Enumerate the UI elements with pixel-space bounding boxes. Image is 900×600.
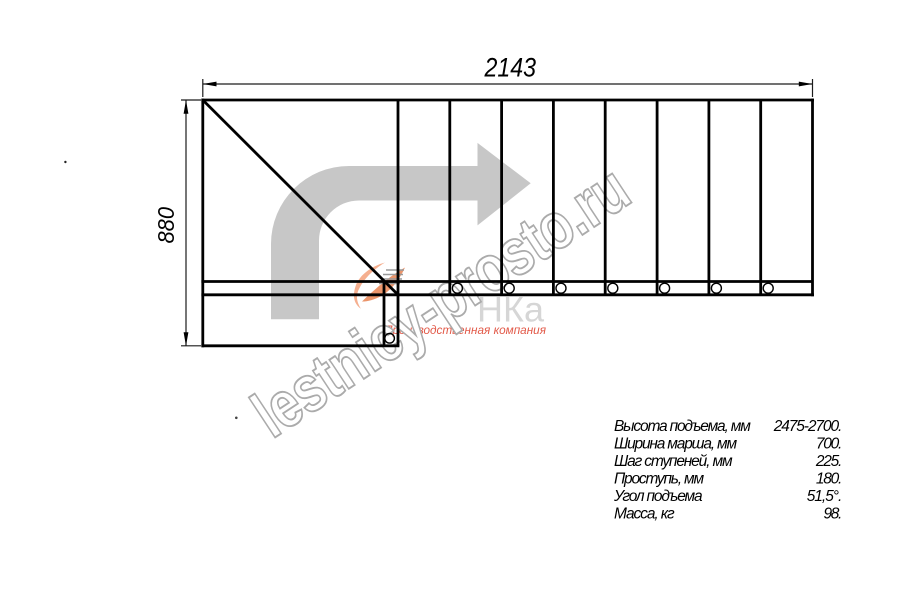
- svg-text:Ширина марша, мм: Ширина марша, мм: [614, 436, 737, 453]
- svg-text:Проступь, мм: Проступь, мм: [614, 471, 704, 488]
- svg-text:Высота подъема, мм: Высота подъема, мм: [614, 418, 751, 435]
- svg-text:51,5°.: 51,5°.: [807, 488, 843, 505]
- svg-text:Масса, кг: Масса, кг: [614, 506, 675, 523]
- svg-text:225.: 225.: [815, 453, 842, 470]
- svg-text:880: 880: [153, 207, 179, 244]
- svg-text:180.: 180.: [816, 471, 842, 488]
- svg-text:Шаг ступеней, мм: Шаг ступеней, мм: [614, 453, 733, 470]
- svg-text:98.: 98.: [824, 506, 843, 523]
- svg-text:700.: 700.: [816, 436, 842, 453]
- svg-text:Угол подъема: Угол подъема: [613, 488, 703, 505]
- svg-text:2143: 2143: [484, 53, 536, 83]
- svg-text:2475-2700.: 2475-2700.: [773, 418, 843, 435]
